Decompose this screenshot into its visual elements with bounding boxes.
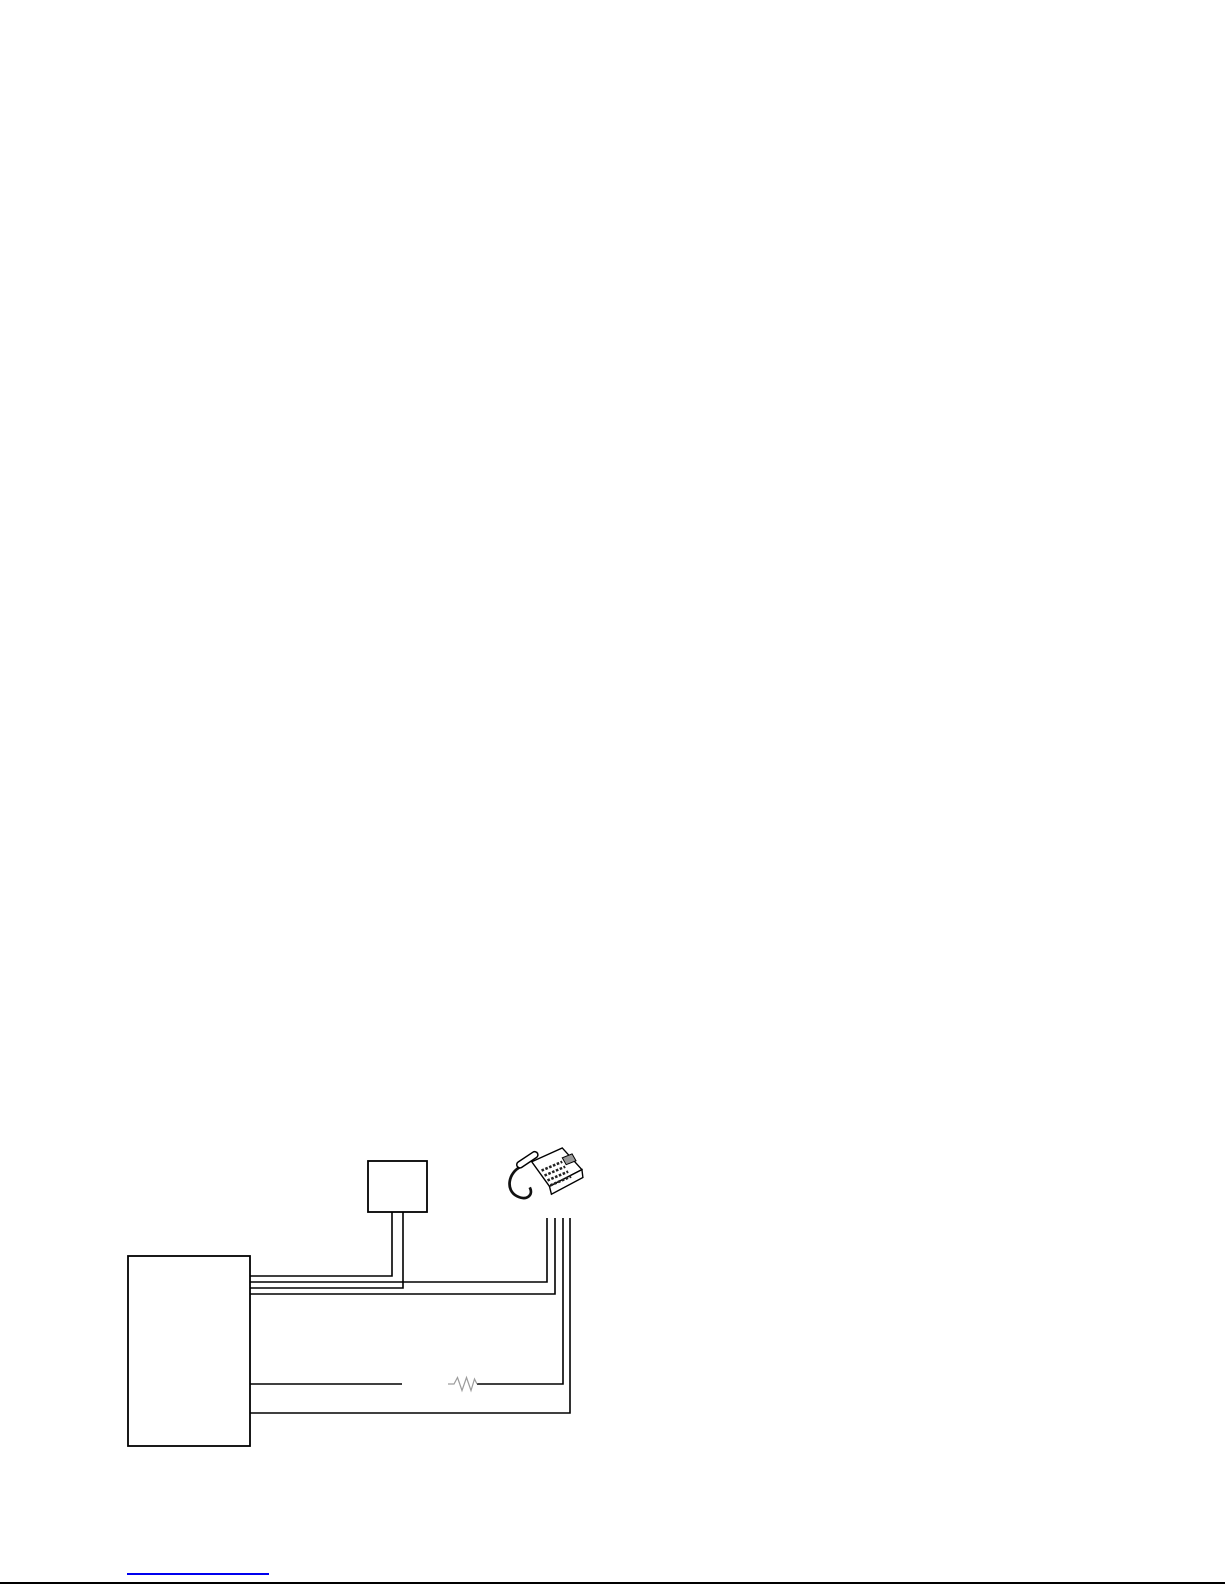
telephone-icon <box>510 1148 583 1198</box>
wire-resistor-to-phone <box>477 1218 563 1384</box>
junction-box <box>368 1161 427 1212</box>
footer-layer <box>0 1574 1225 1583</box>
page <box>0 0 1225 1585</box>
nodes-layer <box>128 1148 583 1446</box>
wires-layer <box>250 1212 570 1413</box>
main-unit-box <box>128 1256 250 1446</box>
wiring-diagram <box>0 0 1225 1585</box>
wire-main-to-junction-left <box>250 1212 392 1276</box>
resistor <box>448 1378 477 1391</box>
wire-main-to-phone-1 <box>250 1218 547 1282</box>
